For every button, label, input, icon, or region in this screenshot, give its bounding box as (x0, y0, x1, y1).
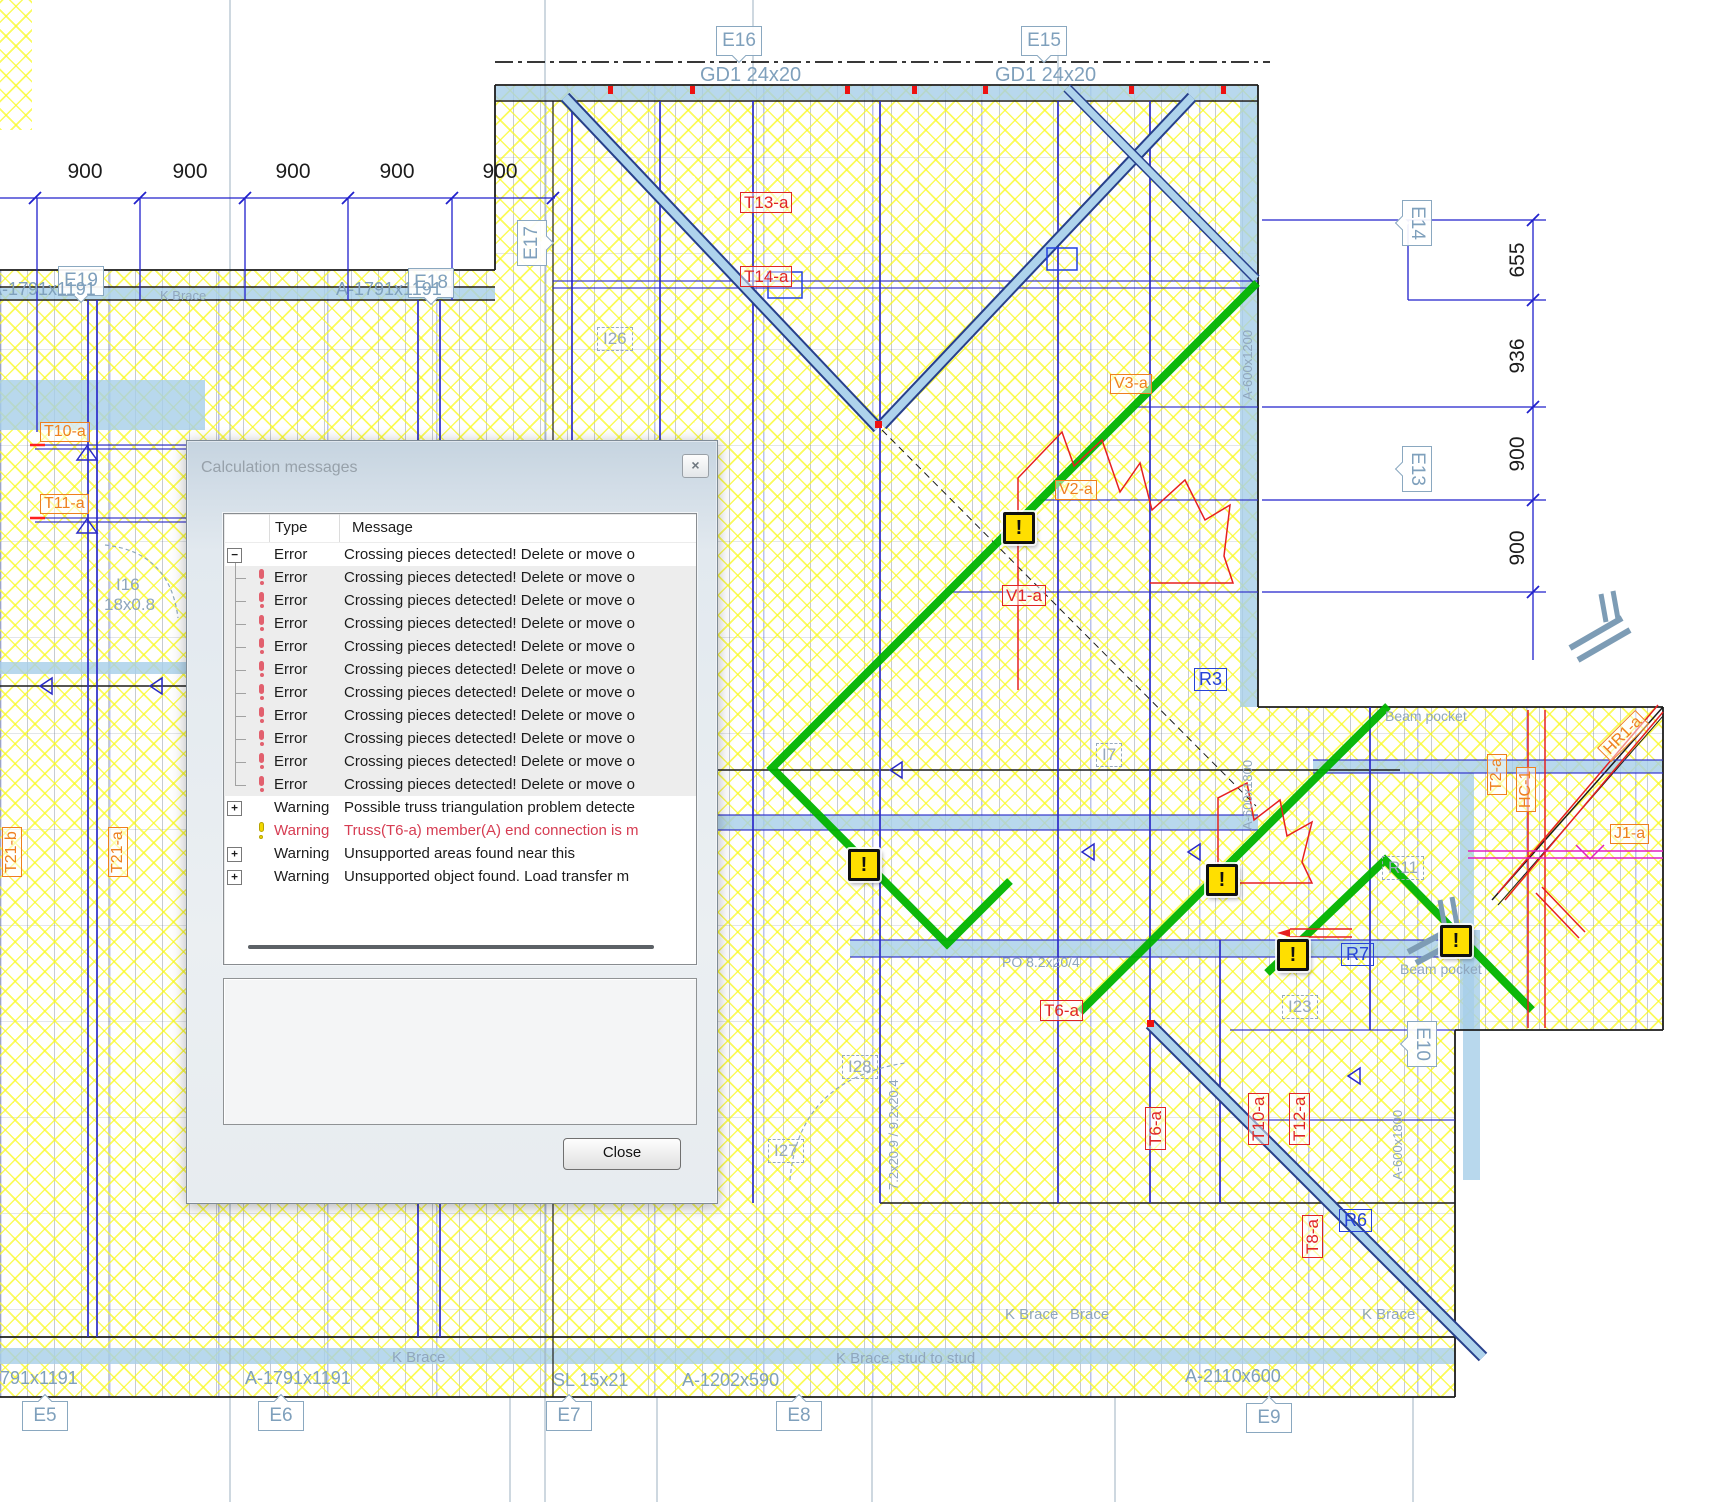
item-label-i28: I28 (842, 1055, 878, 1079)
truss-label-hc1: HC-1 (1516, 767, 1536, 812)
post-size-label: PO 8.2x20/4 (1002, 954, 1080, 970)
dim-right-3: 900 (1506, 432, 1530, 476)
kbrace-label: K Brace (160, 288, 206, 303)
grid-tag-e8: E8 (776, 1401, 822, 1431)
kbrace-stud-label: K Brace, stud to stud (836, 1350, 975, 1367)
error-exclamation-icon (258, 592, 266, 609)
warning-marker-icon[interactable]: ! (848, 849, 880, 881)
kbrace-label: K Brace (1005, 1306, 1058, 1323)
message-type: Warning (274, 845, 344, 862)
message-text: Crossing pieces detected! Delete or move… (344, 661, 696, 678)
message-text: Unsupported object found. Load transfer … (344, 868, 696, 885)
error-exclamation-icon (258, 707, 266, 724)
close-icon[interactable]: × (682, 454, 709, 478)
message-text: Crossing pieces detected! Delete or move… (344, 569, 696, 586)
expand-expander[interactable]: + (227, 847, 242, 862)
truss-label-t21a: T21-a (108, 827, 128, 877)
truss-label-j1a: J1-a (1610, 824, 1649, 844)
dim-top-3: 900 (271, 160, 315, 184)
error-exclamation-icon (258, 753, 266, 770)
kbrace-label: K Brace (392, 1349, 445, 1366)
message-type: Error (274, 707, 344, 724)
message-type: Error (274, 661, 344, 678)
message-text: Crossing pieces detected! Delete or move… (344, 684, 696, 701)
close-button[interactable]: Close (563, 1138, 681, 1170)
panel-label-rot: A-600x1200 (1240, 330, 1255, 400)
horizontal-scrollbar-thumb[interactable] (248, 945, 654, 949)
truss-label-t13a: T13-a (740, 192, 792, 213)
panel-label-rot: A-600x1800 (1240, 760, 1255, 830)
dim-top-1: 900 (63, 160, 107, 184)
warning-marker-icon[interactable]: ! (1003, 512, 1035, 544)
truss-label-t8a-rot: T8-a (1302, 1215, 1323, 1258)
message-text: Crossing pieces detected! Delete or move… (344, 592, 696, 609)
panel-label-rot: A-600x1800 (1390, 1110, 1405, 1180)
girder-label-gd1-left: GD1 24x20 (700, 64, 801, 87)
brace-label: Brace (1070, 1306, 1109, 1323)
message-text: Crossing pieces detected! Delete or move… (344, 753, 696, 770)
message-text: Possible truss triangulation problem det… (344, 799, 696, 816)
dim-top-2: 900 (168, 160, 212, 184)
truss-label-t10a: T10-a (40, 422, 90, 442)
message-row[interactable]: ErrorCrossing pieces detected! Delete or… (224, 589, 696, 612)
message-row[interactable]: +WarningUnsupported object found. Load t… (224, 865, 696, 888)
message-row[interactable]: ErrorCrossing pieces detected! Delete or… (224, 681, 696, 704)
panel-label: A-1791x1191 (0, 1368, 78, 1389)
column-header-type: Type (270, 514, 340, 542)
error-exclamation-icon (258, 684, 266, 701)
message-row[interactable]: +WarningPossible truss triangulation pro… (224, 796, 696, 819)
item-label-i7: I7 (1096, 743, 1122, 767)
message-type: Error (274, 684, 344, 701)
item-label-i27: I27 (768, 1139, 804, 1163)
expand-expander[interactable]: + (227, 870, 242, 885)
error-exclamation-icon (258, 776, 266, 793)
message-type: Error (274, 776, 344, 793)
beam-pocket-label-bottom: Beam pocket (1400, 961, 1482, 977)
message-type: Error (274, 569, 344, 586)
messages-list[interactable]: Type Message −ErrorCrossing pieces detec… (223, 513, 697, 965)
message-type: Warning (274, 799, 344, 816)
message-type: Error (274, 546, 344, 563)
grid-tag-e16: E16 (716, 26, 762, 56)
message-row[interactable]: ErrorCrossing pieces detected! Delete or… (224, 704, 696, 727)
error-exclamation-icon (258, 569, 266, 586)
grid-tag-e17: E17 (517, 220, 547, 266)
message-text: Crossing pieces detected! Delete or move… (344, 776, 696, 793)
expand-expander[interactable]: + (227, 801, 242, 816)
error-exclamation-icon (258, 730, 266, 747)
joist-size-label: 18x0.8 (104, 595, 155, 615)
message-row[interactable]: ErrorCrossing pieces detected! Delete or… (224, 566, 696, 589)
truss-label-t6a: T6-a (1040, 1000, 1083, 1021)
message-row[interactable]: ErrorCrossing pieces detected! Delete or… (224, 727, 696, 750)
truss-label-t21b: T21-b (2, 827, 22, 877)
dialog-title: Calculation messages (201, 459, 358, 477)
message-row[interactable]: −ErrorCrossing pieces detected! Delete o… (224, 543, 696, 566)
dim-top-5: 900 (478, 160, 522, 184)
dim-right-4: 900 (1506, 526, 1530, 570)
message-row[interactable]: ErrorCrossing pieces detected! Delete or… (224, 612, 696, 635)
girder-label-gd1-right: GD1 24x20 (995, 64, 1096, 87)
column-header-message: Message (340, 514, 696, 542)
item-label-i23: I23 (1282, 995, 1318, 1019)
message-text: Truss(T6-a) member(A) end connection is … (344, 822, 696, 839)
cad-canvas: 900 900 900 900 900 655 936 900 900 E16 … (0, 0, 1733, 1502)
collapse-expander[interactable]: − (227, 548, 242, 563)
grid-tag-e14: E14 (1402, 200, 1432, 246)
message-text: Unsupported areas found near this (344, 845, 696, 862)
message-row[interactable]: WarningTruss(T6-a) member(A) end connect… (224, 819, 696, 842)
error-exclamation-icon (258, 638, 266, 655)
truss-label-t14a: T14-a (740, 266, 792, 287)
message-text: Crossing pieces detected! Delete or move… (344, 707, 696, 724)
item-label-i26: I26 (597, 327, 633, 351)
message-row[interactable]: ErrorCrossing pieces detected! Delete or… (224, 635, 696, 658)
message-row[interactable]: +WarningUnsupported areas found near thi… (224, 842, 696, 865)
panel-label: A-1791x1191 (336, 279, 442, 300)
panel-label: A-1202x590 (682, 1370, 779, 1391)
grid-tag-e9: E9 (1246, 1403, 1292, 1433)
post-size-label-rot: 7.2x20.9 / 9.2x20.4 (886, 1079, 901, 1190)
message-text: Crossing pieces detected! Delete or move… (344, 638, 696, 655)
message-text: Crossing pieces detected! Delete or move… (344, 546, 696, 563)
list-header: Type Message (224, 514, 696, 543)
grid-tag-e15: E15 (1021, 26, 1067, 56)
message-type: Warning (274, 822, 344, 839)
message-type: Error (274, 730, 344, 747)
grid-tag-e10: E10 (1407, 1021, 1437, 1067)
message-type: Error (274, 615, 344, 632)
truss-label-t2a: T2-a (1487, 754, 1507, 795)
dim-right-1: 655 (1506, 238, 1530, 282)
grid-tag-e5: E5 (22, 1401, 68, 1431)
dim-top-4: 900 (375, 160, 419, 184)
vent-label-v2a: V2-a (1055, 480, 1097, 500)
warning-exclamation-icon (258, 822, 266, 839)
message-row[interactable]: ErrorCrossing pieces detected! Delete or… (224, 773, 696, 796)
panel-label: A-2110x600 (1185, 1366, 1281, 1387)
truss-label-t12a-rot: T12-a (1289, 1093, 1310, 1145)
calculation-messages-dialog: Calculation messages × Type Message −Err… (186, 440, 718, 1204)
grid-tag-e6: E6 (258, 1401, 304, 1431)
rafter-label-r11: R11 (1382, 856, 1424, 880)
joist-label-i16: I16 (116, 575, 140, 595)
detail-panel (223, 978, 697, 1125)
kbrace-label: K Brace (1362, 1306, 1415, 1323)
rafter-label-r6: R6 (1339, 1209, 1372, 1232)
message-row[interactable]: ErrorCrossing pieces detected! Delete or… (224, 750, 696, 773)
message-text: Crossing pieces detected! Delete or move… (344, 730, 696, 747)
message-type: Error (274, 592, 344, 609)
warning-marker-icon[interactable]: ! (1206, 864, 1238, 896)
panel-label-sl: SL 15x21 (553, 1370, 628, 1391)
truss-label-t6a-rot: T6-a (1145, 1107, 1166, 1150)
error-exclamation-icon (258, 615, 266, 632)
error-exclamation-icon (258, 661, 266, 678)
truss-label-t10a-rot: T10-a (1248, 1093, 1269, 1145)
dim-right-2: 936 (1506, 334, 1530, 378)
message-text: Crossing pieces detected! Delete or move… (344, 615, 696, 632)
panel-label: A-1791x1191 (245, 1368, 351, 1389)
message-type: Error (274, 753, 344, 770)
warning-marker-icon[interactable]: ! (1440, 925, 1472, 957)
truss-label-t11a: T11-a (40, 494, 89, 514)
warning-marker-icon[interactable]: ! (1277, 939, 1309, 971)
rafter-label-r3: R3 (1194, 668, 1227, 691)
vent-label-v1a: V1-a (1002, 585, 1046, 606)
message-type: Warning (274, 868, 344, 885)
grid-tag-e7: E7 (546, 1401, 592, 1431)
grid-tag-e13: E13 (1402, 446, 1432, 492)
message-row[interactable]: ErrorCrossing pieces detected! Delete or… (224, 658, 696, 681)
panel-label: A-1791x1191 (0, 279, 96, 300)
vent-label-v3a: V3-a (1110, 374, 1152, 394)
message-type: Error (274, 638, 344, 655)
rafter-label-r7: R7 (1341, 943, 1374, 966)
beam-pocket-label-top: Beam pocket (1385, 708, 1467, 724)
